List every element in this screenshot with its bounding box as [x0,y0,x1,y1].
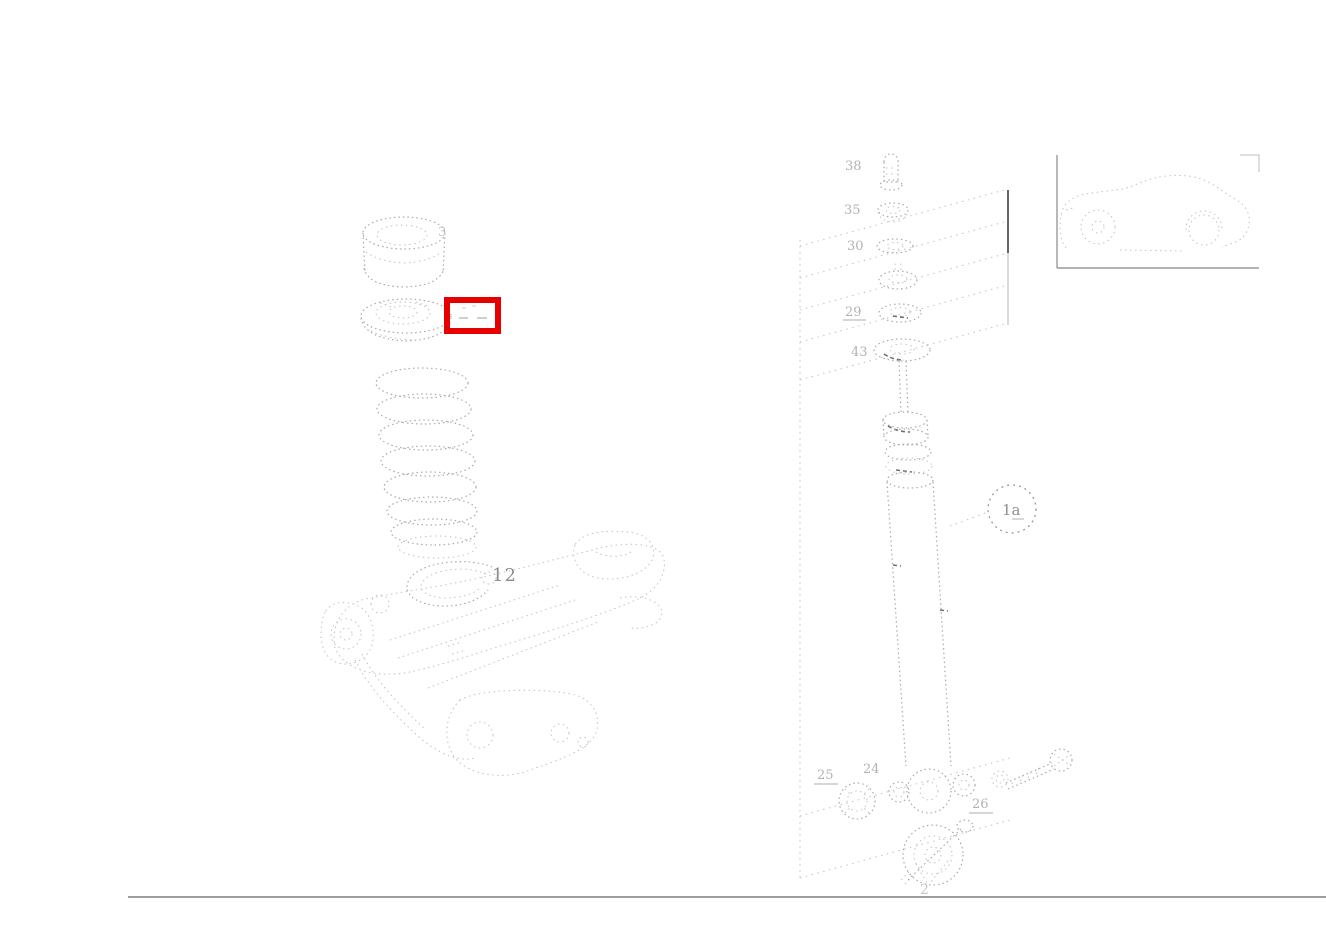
spring-seat-part [361,299,451,341]
callout-25[interactable]: 25 [817,768,834,783]
right-assembly: 1a 38 35 [800,154,1072,898]
callout-35[interactable]: 35 [844,203,861,218]
bump-stop-part [363,217,445,287]
car-silhouette-inset [1057,155,1259,268]
callout-30[interactable]: 30 [847,239,864,254]
callout-2[interactable]: 2 [920,882,929,898]
callout-shock-absorber[interactable]: 1a [1002,501,1021,519]
diagram-page: 3 [0,0,1326,938]
callout-29[interactable]: 29 [845,305,862,320]
left-assembly: 3 [321,217,664,775]
highlight-box[interactable] [447,300,498,331]
exploded-drawing: 3 [0,0,1326,938]
faint-hidden-label-2 [462,306,476,308]
callout-24[interactable]: 24 [863,762,880,777]
callout-43[interactable]: 43 [851,345,868,360]
inset-corner [1240,155,1259,172]
shock-callout-circle[interactable]: 1a [950,485,1036,533]
callout-bump-stop[interactable]: 3 [438,225,446,240]
shock-absorber-part [883,361,951,813]
callout-spring-clip[interactable]: 12 [492,565,517,586]
callout-38[interactable]: 38 [845,159,862,174]
mount-hardware-stack [874,154,930,361]
coil-spring-part [376,368,477,558]
callout-26[interactable]: 26 [972,797,989,812]
car-outline [1060,175,1249,251]
